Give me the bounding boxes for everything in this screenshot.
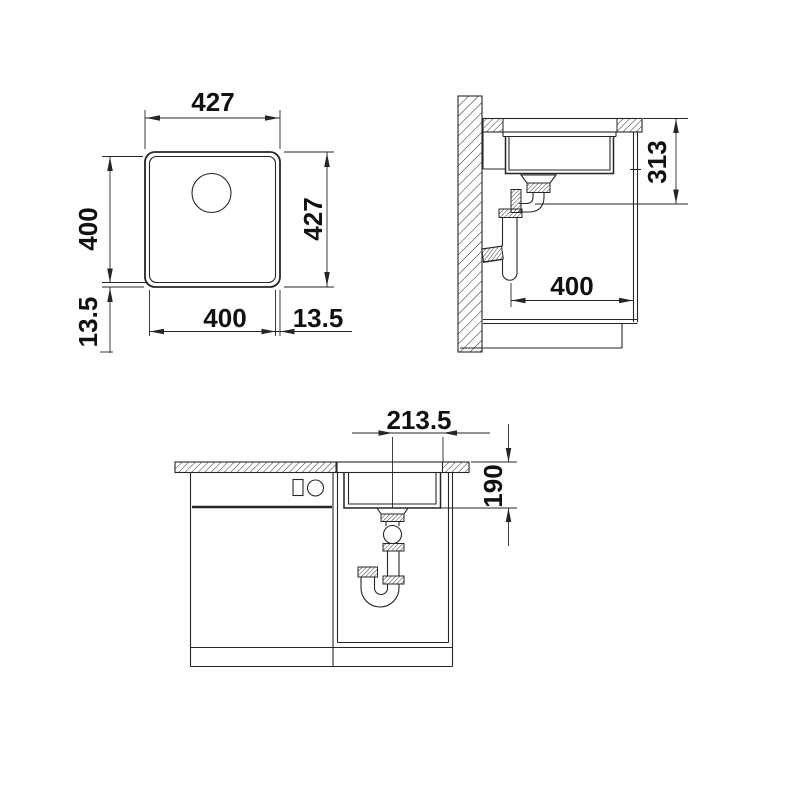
strainer-flange: [377, 508, 408, 514]
pipe-nut: [499, 209, 522, 218]
dim-label: 400: [550, 271, 593, 301]
dim-plan-outer-height: 427: [284, 152, 334, 287]
dim-label: 400: [203, 303, 246, 333]
dim-plan-inner-height: 400: [73, 157, 148, 283]
bowl-outer-wall: [506, 137, 614, 174]
control-knob-icon: [308, 480, 324, 496]
arrowhead-left: [146, 115, 160, 121]
arrowhead-right: [265, 115, 279, 121]
dim-plan-rim-left: 13.5: [73, 287, 144, 353]
trap-bottom-cap: [502, 273, 517, 280]
countertop-hatch-right: [443, 462, 470, 473]
dim-side-base-depth: 400: [511, 271, 634, 307]
elbow-outer: [519, 197, 544, 212]
dim-label: 313: [642, 140, 672, 183]
countertop-hatch-left: [175, 462, 336, 473]
wall-outlet-nut: [482, 246, 504, 262]
bowl-inner-wall: [509, 137, 610, 171]
ball-joint: [384, 526, 402, 544]
dim-label: 13.5: [73, 297, 103, 348]
dim-front-center-to-edge: 213.5: [352, 405, 490, 462]
dim-label: 190: [478, 464, 508, 507]
drain-hole: [192, 174, 231, 213]
side-section-view: 313 400: [458, 96, 688, 352]
countertop-hatch-right: [617, 119, 642, 133]
dim-label: 427: [191, 87, 234, 117]
technical-drawing-page: 427 400 13.5 427: [0, 0, 800, 800]
countertop-section: [483, 119, 642, 133]
pipe-nut-upper: [383, 544, 404, 552]
dim-plan-rim-right: 13.5: [281, 303, 344, 334]
dim-label: 427: [298, 197, 328, 240]
countertop-hatch-left: [483, 119, 503, 133]
bowl-outer-outline: [145, 152, 280, 287]
dim-label: 400: [73, 207, 103, 250]
countertop-front: [175, 462, 469, 473]
trap-inlet-nut: [358, 567, 378, 577]
bowl-inner-outline: [150, 157, 276, 283]
pipe-nut-lower: [383, 576, 404, 584]
dim-label: 13.5: [293, 303, 344, 333]
dim-label: 213.5: [386, 405, 451, 435]
base-cabinets: [191, 473, 453, 667]
drain-assembly-front: [358, 508, 408, 607]
control-square-icon: [293, 480, 303, 496]
plan-view: 427 400 13.5 427: [73, 87, 352, 353]
sink-dimension-drawing: 427 400 13.5 427: [0, 0, 800, 800]
dim-plan-outer-width: 427: [145, 87, 280, 149]
bowl-section: [483, 132, 616, 174]
dim-side-depth-with-strainer: 313: [535, 119, 688, 205]
drain-assembly-side: [482, 175, 556, 280]
strainer-flange: [521, 175, 556, 183]
strainer-nut: [527, 183, 550, 193]
front-section-view: 213.5 190: [175, 405, 517, 667]
strainer-nut: [381, 514, 404, 522]
wall-hatch: [458, 96, 482, 352]
